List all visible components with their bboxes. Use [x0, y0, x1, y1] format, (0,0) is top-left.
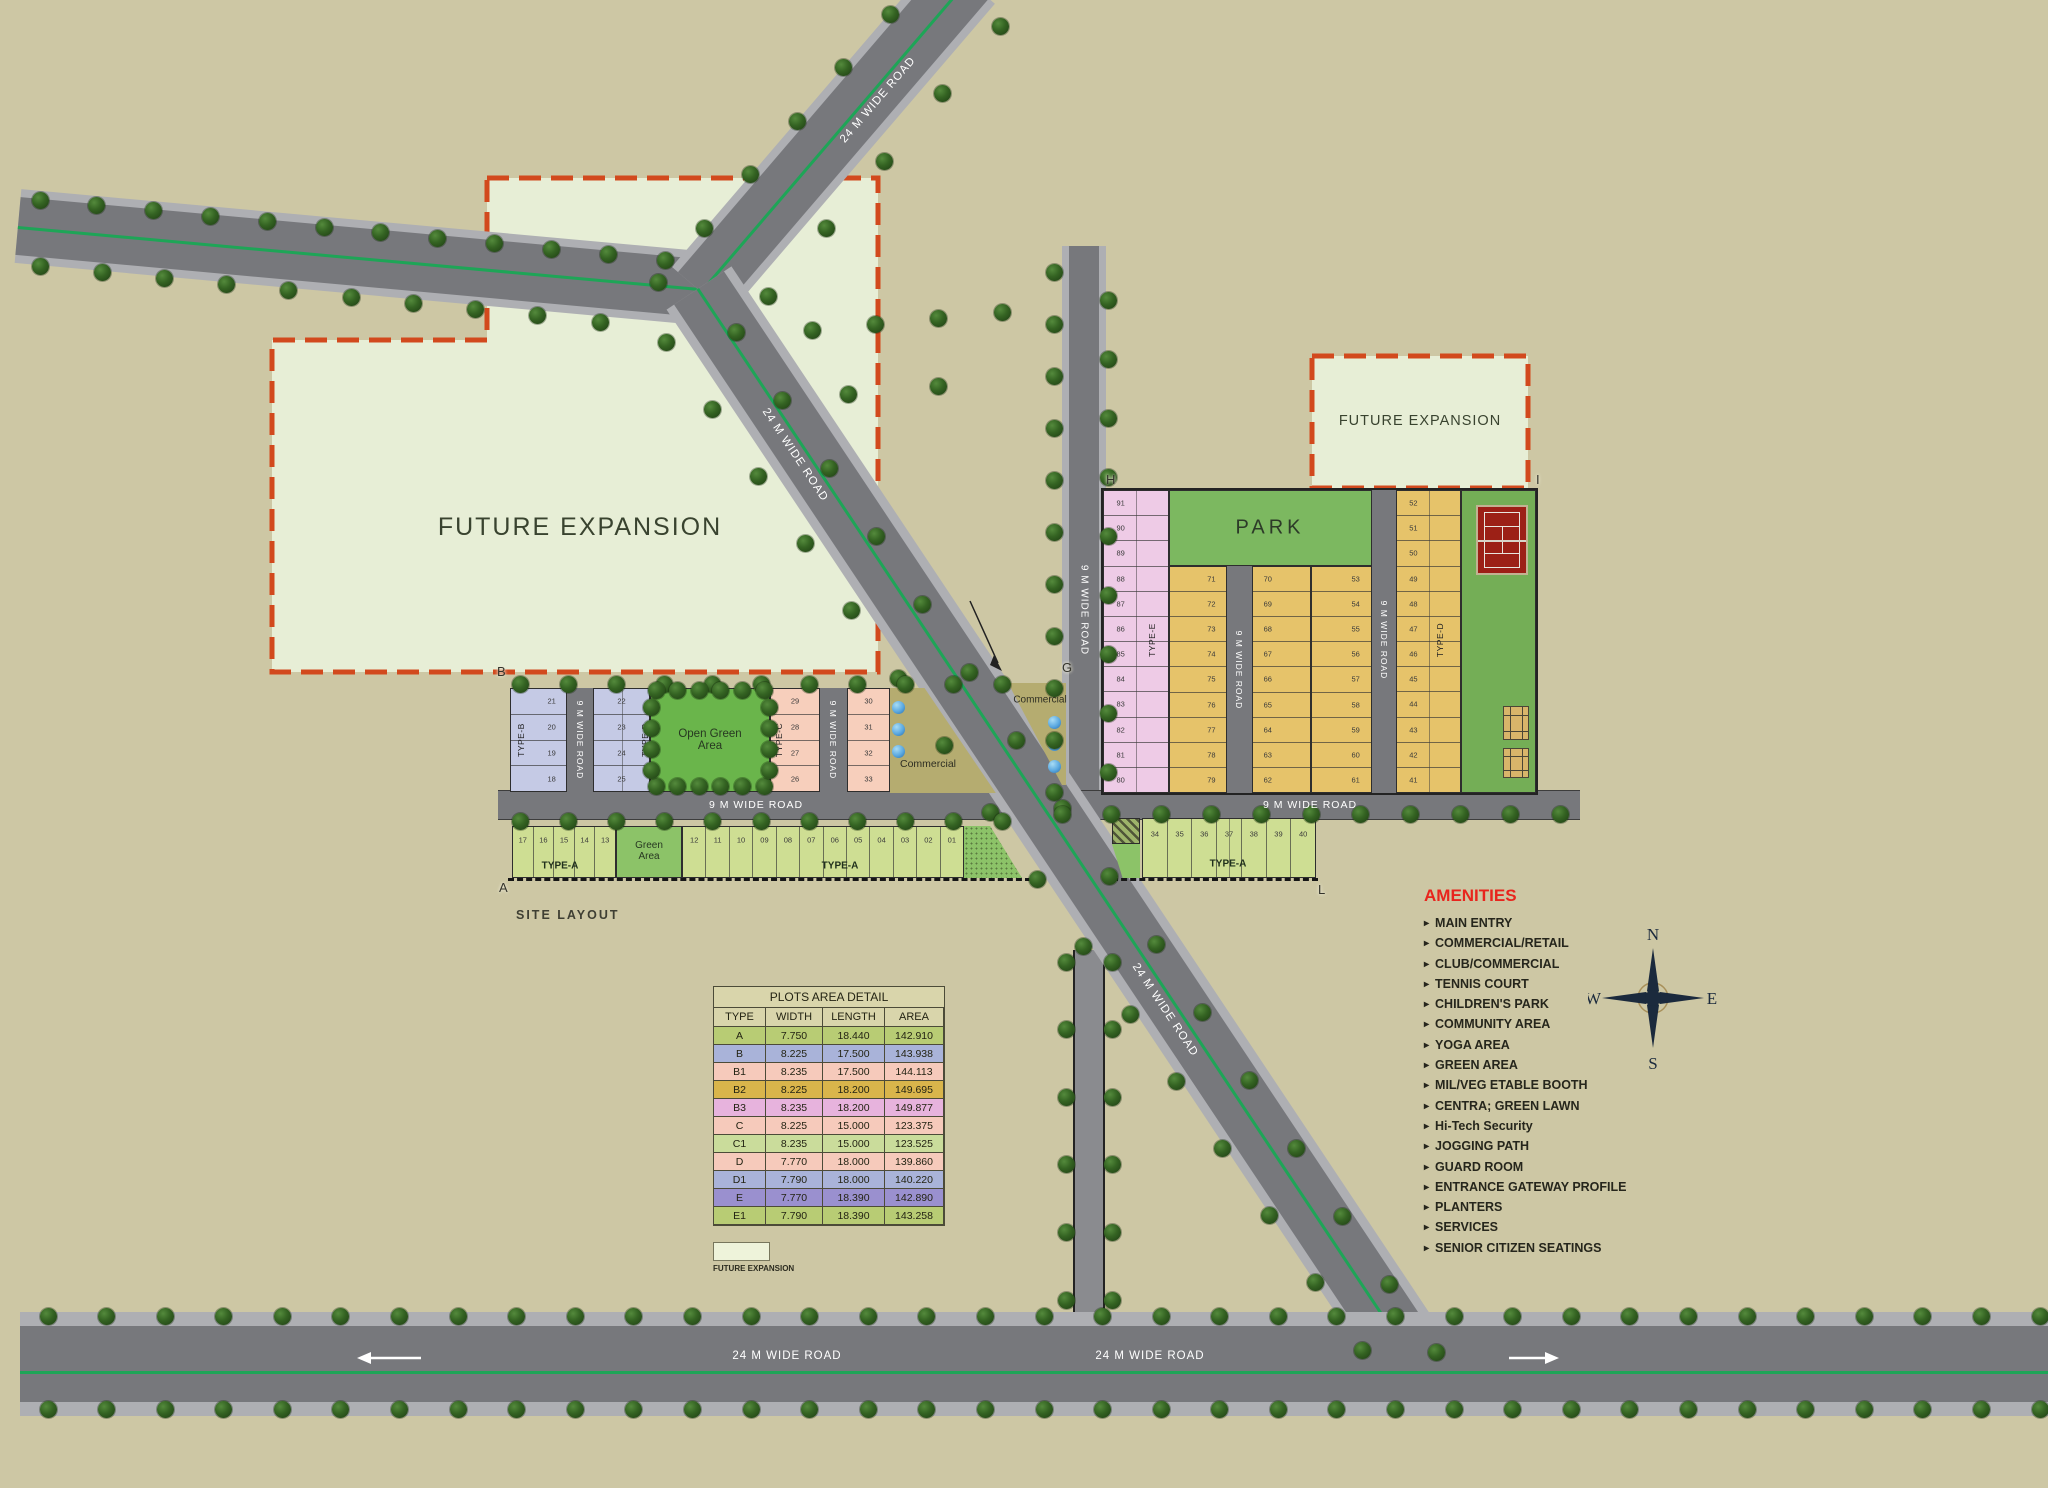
tree-icon: [1104, 954, 1121, 971]
tree-icon: [1621, 1308, 1638, 1325]
tree-icon: [1446, 1308, 1463, 1325]
tree-icon: [914, 596, 931, 613]
amenities-title: AMENITIES: [1424, 886, 1724, 906]
plot-cell: 13: [594, 827, 615, 877]
tree-icon: [1046, 524, 1063, 541]
tree-icon: [1504, 1401, 1521, 1418]
tree-icon: [567, 1401, 584, 1418]
plot-cell: 12: [683, 827, 705, 877]
fountain-icon: [892, 723, 905, 736]
tree-icon: [849, 676, 866, 693]
tree-icon: [1103, 806, 1120, 823]
compass-s: S: [1648, 1054, 1657, 1073]
tree-icon: [1153, 1308, 1170, 1325]
plot-cell: 10: [729, 827, 752, 877]
plot-cell: 66: [1253, 666, 1310, 691]
tree-icon: [1094, 1401, 1111, 1418]
tree-icon: [704, 813, 721, 830]
tree-icon: [696, 220, 713, 237]
table-cell: 140.220: [885, 1171, 944, 1189]
tree-icon: [743, 1308, 760, 1325]
tree-icon: [40, 1308, 57, 1325]
tree-icon: [259, 213, 276, 230]
tree-icon: [215, 1308, 232, 1325]
plot-cell: 03: [893, 827, 916, 877]
tree-icon: [1104, 1292, 1121, 1309]
table-cell: 143.938: [885, 1045, 944, 1063]
tree-icon: [1104, 1089, 1121, 1106]
plot-cell: 74: [1170, 641, 1226, 666]
plot-cell: 51: [1397, 515, 1460, 540]
tree-icon: [1058, 1292, 1075, 1309]
table-cell: 18.000: [823, 1153, 885, 1171]
tree-icon: [1856, 1401, 1873, 1418]
plot-cell: 86: [1104, 616, 1168, 641]
plot-cell: 08: [776, 827, 799, 877]
tree-icon: [608, 676, 625, 693]
table-cell: D1: [714, 1171, 766, 1189]
tree-icon: [1054, 806, 1071, 823]
tree-icon: [332, 1401, 349, 1418]
tree-icon: [343, 289, 360, 306]
road-label: 9 M WIDE ROAD: [828, 701, 838, 780]
tree-icon: [918, 1308, 935, 1325]
tree-icon: [1122, 1006, 1139, 1023]
table-cell: 18.200: [823, 1099, 885, 1117]
plot-cell: 82: [1104, 717, 1168, 742]
table-header: TYPE: [714, 1008, 766, 1027]
tree-icon: [1100, 351, 1117, 368]
tree-icon: [1029, 871, 1046, 888]
tree-icon: [1452, 806, 1469, 823]
tree-icon: [512, 813, 529, 830]
amenity-item: MIL/VEG ETABLE BOOTH: [1424, 1076, 1724, 1096]
tree-icon: [1101, 868, 1118, 885]
table-cell: B2: [714, 1081, 766, 1099]
table-cell: 8.235: [766, 1063, 823, 1081]
plot-cell: 76: [1170, 692, 1226, 717]
tree-icon: [821, 460, 838, 477]
table-cell: A: [714, 1027, 766, 1045]
fountain-icon: [892, 745, 905, 758]
plot-cell: 42: [1397, 742, 1460, 767]
tree-icon: [543, 241, 560, 258]
tree-icon: [658, 334, 675, 351]
tree-icon: [1100, 292, 1117, 309]
tree-icon: [1563, 1308, 1580, 1325]
table-header: AREA: [885, 1008, 944, 1027]
tree-icon: [977, 1308, 994, 1325]
plot-cell: 67: [1253, 641, 1310, 666]
tree-icon: [801, 676, 818, 693]
road-vertical-lower: [1073, 950, 1105, 1330]
road-9m-vertical-west: [1062, 246, 1106, 818]
tree-icon: [1104, 1021, 1121, 1038]
plot-cell: 75: [1170, 666, 1226, 691]
plot-cell: 64: [1253, 717, 1310, 742]
tree-icon: [1563, 1401, 1580, 1418]
corner-label-i: I: [1536, 472, 1540, 487]
tree-icon: [643, 741, 660, 758]
tree-icon: [860, 1401, 877, 1418]
fountain-icon: [1048, 716, 1061, 729]
fountain-icon: [892, 701, 905, 714]
table-cell: 8.235: [766, 1135, 823, 1153]
tree-icon: [684, 1308, 701, 1325]
table-cell: 17.500: [823, 1063, 885, 1081]
tree-icon: [643, 762, 660, 779]
arrow-left-icon: [355, 1350, 425, 1366]
tree-icon: [761, 762, 778, 779]
tree-icon: [2032, 1401, 2048, 1418]
tree-icon: [600, 246, 617, 263]
tree-icon: [1973, 1308, 1990, 1325]
plot-cell: 50: [1397, 540, 1460, 565]
tree-icon: [1168, 1073, 1185, 1090]
tree-icon: [450, 1401, 467, 1418]
tree-icon: [1046, 732, 1063, 749]
fountain-icon: [1048, 760, 1061, 773]
compass-w: W: [1588, 989, 1602, 1008]
compass-e: E: [1707, 989, 1717, 1008]
tree-icon: [1446, 1401, 1463, 1418]
park-label: PARK: [1236, 517, 1305, 540]
tree-icon: [1387, 1308, 1404, 1325]
tennis-court: [1476, 505, 1528, 575]
plot-cell: 40: [1290, 819, 1315, 877]
table-cell: B1: [714, 1063, 766, 1081]
plot-boundary-dashed: [508, 878, 1031, 881]
tree-icon: [977, 1401, 994, 1418]
tree-icon: [625, 1308, 642, 1325]
tree-icon: [1381, 1276, 1398, 1293]
tree-icon: [650, 274, 667, 291]
table-cell: 17.500: [823, 1045, 885, 1063]
plot-cell: 52: [1397, 491, 1460, 515]
tree-icon: [1211, 1308, 1228, 1325]
plot-cell: 63: [1253, 742, 1310, 767]
tree-icon: [40, 1401, 57, 1418]
table-cell: 8.235: [766, 1099, 823, 1117]
tree-icon: [156, 270, 173, 287]
tree-icon: [332, 1308, 349, 1325]
tree-icon: [391, 1401, 408, 1418]
tree-icon: [32, 192, 49, 209]
plot-cell: 88: [1104, 566, 1168, 591]
tree-icon: [1046, 368, 1063, 385]
table-header: LENGTH: [823, 1008, 885, 1027]
tree-icon: [797, 535, 814, 552]
green-area-label: Green Area: [625, 840, 673, 862]
tree-icon: [1104, 1224, 1121, 1241]
tree-icon: [2032, 1308, 2048, 1325]
plot-cell: 01: [940, 827, 963, 877]
plot-cell: 25: [594, 765, 649, 791]
table-cell: 8.225: [766, 1045, 823, 1063]
tree-icon: [897, 813, 914, 830]
tree-icon: [608, 813, 625, 830]
tree-icon: [1046, 784, 1063, 801]
tree-icon: [753, 813, 770, 830]
tree-icon: [761, 699, 778, 716]
plot-cell: 53: [1312, 567, 1371, 591]
plot-cell: 21: [511, 689, 566, 714]
table-cell: 8.225: [766, 1081, 823, 1099]
tree-icon: [1100, 410, 1117, 427]
tree-icon: [1270, 1401, 1287, 1418]
tree-icon: [215, 1401, 232, 1418]
plot-cell: 17: [513, 827, 533, 877]
future-expansion-label-main: FUTURE EXPANSION: [380, 513, 780, 542]
tree-icon: [429, 230, 446, 247]
table-cell: E: [714, 1189, 766, 1207]
tree-icon: [994, 813, 1011, 830]
plot-cell: 41: [1397, 767, 1460, 792]
plot-column-71: 717273747576777879: [1169, 566, 1227, 793]
tree-icon: [1100, 528, 1117, 545]
plot-cell: 59: [1312, 717, 1371, 742]
tree-icon: [1241, 1072, 1258, 1089]
plot-cell: 39: [1266, 819, 1291, 877]
tree-icon: [1270, 1308, 1287, 1325]
tree-icon: [1153, 806, 1170, 823]
tree-icon: [1914, 1401, 1931, 1418]
tree-icon: [1008, 732, 1025, 749]
plot-cell: 11: [705, 827, 728, 877]
tree-icon: [1058, 1224, 1075, 1241]
plot-cell: 79: [1170, 767, 1226, 792]
tree-icon: [1100, 705, 1117, 722]
tree-icon: [1094, 1308, 1111, 1325]
tree-icon: [567, 1308, 584, 1325]
tree-icon: [648, 682, 665, 699]
tree-icon: [1058, 1156, 1075, 1173]
road-label: 9 M WIDE ROAD: [1234, 631, 1244, 710]
type-label: TYPE-E: [1147, 623, 1157, 657]
tree-icon: [94, 264, 111, 281]
plot-cell: 71: [1170, 567, 1226, 591]
corner-label-g: G: [1062, 660, 1072, 675]
tree-icon: [274, 1401, 291, 1418]
road-label: 9 M WIDE ROAD: [709, 799, 803, 811]
table-cell: 18.440: [823, 1027, 885, 1045]
tree-icon: [98, 1401, 115, 1418]
tree-icon: [712, 778, 729, 795]
plot-cell: 73: [1170, 616, 1226, 641]
plot-cell: 89: [1104, 540, 1168, 565]
plot-cell: 58: [1312, 692, 1371, 717]
table-cell: 15.000: [823, 1135, 885, 1153]
table-cell: 149.695: [885, 1081, 944, 1099]
type-label: TYPE-D: [1435, 623, 1445, 657]
plot-cell: 72: [1170, 591, 1226, 616]
table-cell: 7.770: [766, 1153, 823, 1171]
tree-icon: [98, 1308, 115, 1325]
future-expansion-label-ne: FUTURE EXPANSION: [1318, 413, 1522, 429]
table-cell: C1: [714, 1135, 766, 1153]
tree-icon: [1680, 1401, 1697, 1418]
plot-cell: 35: [1167, 819, 1192, 877]
plot-column-type-d: 525150494847464544434241: [1396, 490, 1461, 793]
table-cell: 15.000: [823, 1117, 885, 1135]
type-label: TYPE-A: [1210, 859, 1247, 870]
tree-icon: [1148, 936, 1165, 953]
bench-icon: [1503, 706, 1529, 740]
tree-icon: [1621, 1401, 1638, 1418]
plot-cell: 30: [848, 689, 889, 714]
page-title: SITE LAYOUT: [516, 908, 620, 922]
tree-icon: [1334, 1208, 1351, 1225]
table-cell: 139.860: [885, 1153, 944, 1171]
table-cell: 18.000: [823, 1171, 885, 1189]
plot-cell: 60: [1312, 742, 1371, 767]
table-cell: 149.877: [885, 1099, 944, 1117]
type-label: TYPE-A: [542, 861, 579, 872]
plot-cell: 47: [1397, 616, 1460, 641]
tree-icon: [934, 85, 951, 102]
tree-icon: [1914, 1308, 1931, 1325]
tree-icon: [691, 778, 708, 795]
corner-label-l: L: [1318, 882, 1325, 897]
plot-cell: 91: [1104, 491, 1168, 515]
table-cell: 142.890: [885, 1189, 944, 1207]
tree-icon: [467, 301, 484, 318]
amenity-item: SENIOR CITIZEN SEATINGS: [1424, 1239, 1724, 1259]
tree-icon: [961, 664, 978, 681]
plot-cell: 78: [1170, 742, 1226, 767]
tree-icon: [316, 219, 333, 236]
tree-icon: [1194, 1004, 1211, 1021]
open-green-area-label: Open Green Area: [668, 728, 752, 752]
tree-icon: [1739, 1401, 1756, 1418]
tree-icon: [1211, 1401, 1228, 1418]
tree-icon: [1046, 680, 1063, 697]
guard-room-hatch: [1112, 818, 1140, 844]
plot-cell: 07: [799, 827, 822, 877]
tree-icon: [801, 1401, 818, 1418]
plot-cell: 26: [771, 765, 819, 791]
table-cell: C: [714, 1117, 766, 1135]
plot-cell: 62: [1253, 767, 1310, 792]
road-label: 9 M WIDE ROAD: [1079, 565, 1090, 655]
tree-icon: [728, 324, 745, 341]
tree-icon: [1387, 1401, 1404, 1418]
plot-cell: 31: [848, 714, 889, 740]
tree-icon: [1100, 587, 1117, 604]
plot-cell: 56: [1312, 641, 1371, 666]
plot-cell: 69: [1253, 591, 1310, 616]
tree-icon: [1973, 1401, 1990, 1418]
road-label: 9 M WIDE ROAD: [1263, 799, 1357, 811]
tree-icon: [756, 682, 773, 699]
tree-icon: [818, 220, 835, 237]
tree-icon: [1153, 1401, 1170, 1418]
plot-cell: 46: [1397, 641, 1460, 666]
amenity-item: PLANTERS: [1424, 1198, 1724, 1218]
tree-icon: [157, 1401, 174, 1418]
site-layout-plan: FUTURE EXPANSION FUTURE EXPANSION 9 M WI…: [0, 0, 2048, 1488]
tree-icon: [405, 295, 422, 312]
tree-icon: [1680, 1308, 1697, 1325]
tree-icon: [1058, 954, 1075, 971]
plot-cell: 04: [869, 827, 892, 877]
plot-cell: 43: [1397, 717, 1460, 742]
tree-icon: [849, 813, 866, 830]
corner-label-a: A: [499, 880, 508, 895]
plot-cell: 45: [1397, 666, 1460, 691]
tree-icon: [32, 258, 49, 275]
plot-cell: 57: [1312, 666, 1371, 691]
tree-icon: [743, 1401, 760, 1418]
arrow-right-icon: [1505, 1350, 1561, 1366]
table-cell: E1: [714, 1207, 766, 1225]
tree-icon: [508, 1308, 525, 1325]
table-cell: 8.225: [766, 1117, 823, 1135]
tree-icon: [930, 310, 947, 327]
corner-label-b: B: [497, 664, 506, 679]
tree-icon: [1046, 420, 1063, 437]
tree-icon: [868, 528, 885, 545]
table-cell: 7.790: [766, 1207, 823, 1225]
legend-label: FUTURE EXPANSION: [713, 1264, 794, 1273]
tree-icon: [1100, 764, 1117, 781]
tree-icon: [450, 1308, 467, 1325]
tree-icon: [945, 676, 962, 693]
plot-cell: 54: [1312, 591, 1371, 616]
table-cell: 7.750: [766, 1027, 823, 1045]
plots-table: PLOTS AREA DETAILTYPEWIDTHLENGTHAREAA7.7…: [713, 986, 945, 1226]
tree-icon: [760, 288, 777, 305]
tree-icon: [643, 699, 660, 716]
tree-icon: [756, 778, 773, 795]
tree-icon: [734, 778, 751, 795]
plot-cell: 49: [1397, 566, 1460, 591]
tree-icon: [936, 737, 953, 754]
tree-icon: [774, 392, 791, 409]
tree-icon: [274, 1308, 291, 1325]
road-label: 24 M WIDE ROAD: [1095, 1350, 1204, 1362]
tree-icon: [1261, 1207, 1278, 1224]
tree-icon: [656, 813, 673, 830]
tree-icon: [1058, 1021, 1075, 1038]
tree-icon: [734, 682, 751, 699]
tree-icon: [643, 720, 660, 737]
tree-icon: [840, 386, 857, 403]
tree-icon: [669, 778, 686, 795]
tree-icon: [1036, 1401, 1053, 1418]
tree-icon: [1046, 628, 1063, 645]
tree-icon: [867, 316, 884, 333]
plot-cell: 77: [1170, 717, 1226, 742]
type-label: TYPE-B: [516, 723, 526, 757]
plot-cell: 18: [511, 765, 566, 791]
table-cell: 143.258: [885, 1207, 944, 1225]
tree-icon: [1203, 806, 1220, 823]
plot-column-53: 535455565758596061: [1311, 566, 1372, 793]
plot-boundary-dashed: [1112, 878, 1318, 881]
table-cell: 7.770: [766, 1189, 823, 1207]
plot-cell: 68: [1253, 616, 1310, 641]
tree-icon: [789, 113, 806, 130]
table-cell: B3: [714, 1099, 766, 1117]
tree-icon: [1502, 806, 1519, 823]
road-label: 24 M WIDE ROAD: [732, 1350, 841, 1362]
table-cell: 18.390: [823, 1189, 885, 1207]
tree-icon: [669, 682, 686, 699]
table-title: PLOTS AREA DETAIL: [714, 987, 944, 1008]
tree-icon: [930, 378, 947, 395]
amenity-item: JOGGING PATH: [1424, 1137, 1724, 1157]
